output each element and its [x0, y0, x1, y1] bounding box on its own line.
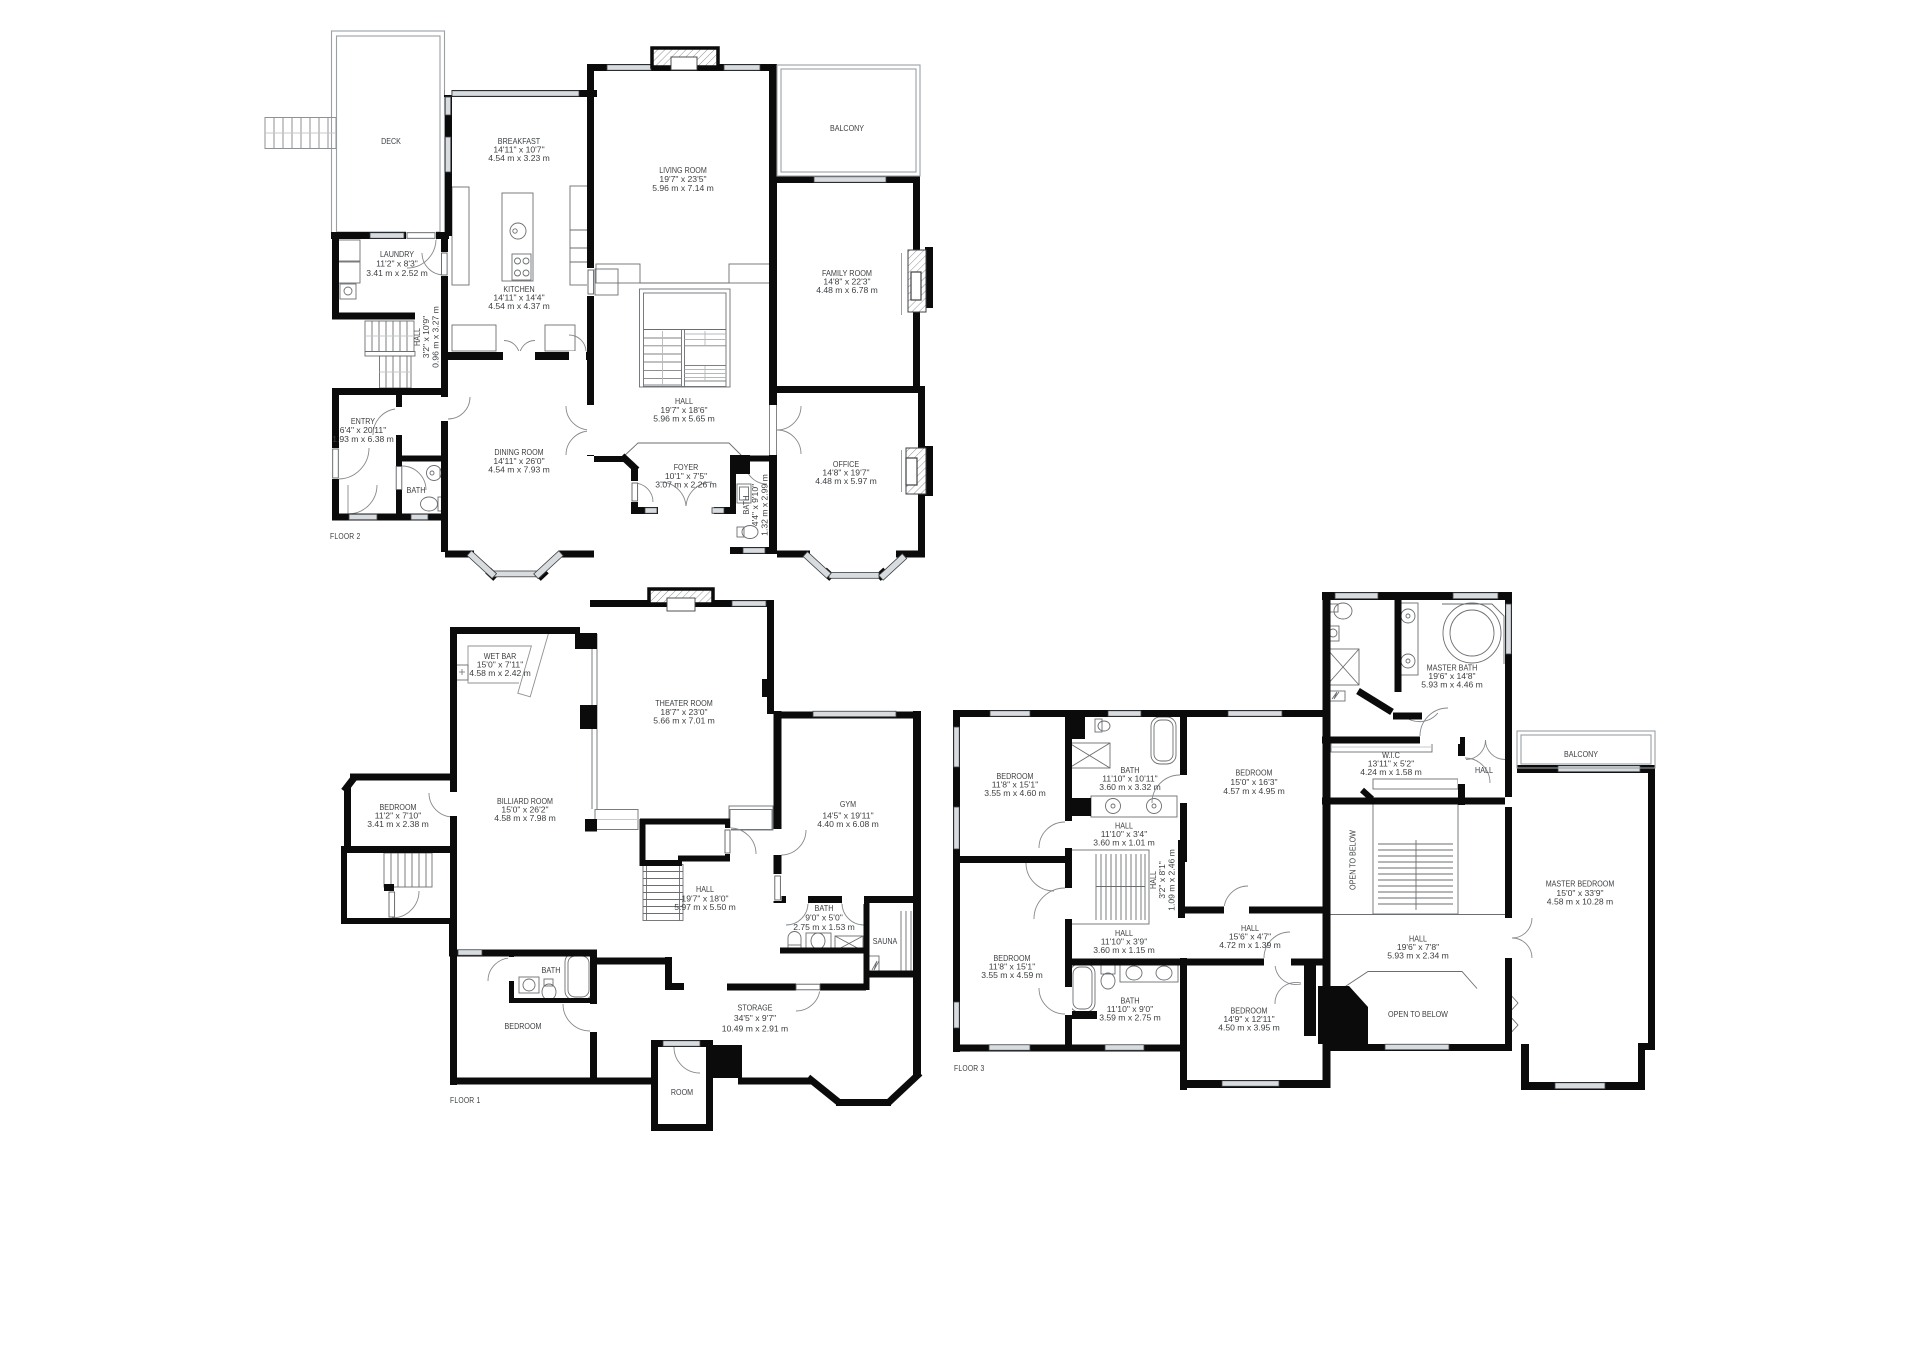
svg-text:3.41 m x 2.38 m: 3.41 m x 2.38 m [367, 819, 429, 829]
svg-text:3.59 m x 2.75 m: 3.59 m x 2.75 m [1099, 1013, 1161, 1023]
svg-text:3.55 m x 4.60 m: 3.55 m x 4.60 m [984, 788, 1046, 798]
svg-text:FLOOR 2: FLOOR 2 [330, 532, 361, 541]
svg-text:BATH: BATH [542, 965, 561, 975]
svg-text:1.09 m x 2.46 m: 1.09 m x 2.46 m [1167, 849, 1177, 911]
svg-text:3'2" x 10'9": 3'2" x 10'9" [421, 316, 431, 358]
svg-text:4.48 m x 5.97 m: 4.48 m x 5.97 m [815, 476, 877, 486]
svg-text:BALCONY: BALCONY [1564, 749, 1598, 759]
svg-text:5.93 m x 2.34 m: 5.93 m x 2.34 m [1387, 951, 1449, 961]
svg-text:10.49 m x 2.91 m: 10.49 m x 2.91 m [722, 1024, 788, 1034]
svg-text:3.07 m x 2.26 m: 3.07 m x 2.26 m [655, 480, 717, 490]
svg-text:3.41 m x 2.52 m: 3.41 m x 2.52 m [366, 268, 428, 278]
svg-text:4.54 m x 3.23 m: 4.54 m x 3.23 m [488, 153, 550, 163]
svg-text:3.60 m x 3.32 m: 3.60 m x 3.32 m [1099, 782, 1161, 792]
svg-text:HALL: HALL [1475, 765, 1493, 775]
svg-text:SAUNA: SAUNA [873, 936, 898, 946]
svg-text:BATH: BATH [407, 485, 426, 495]
svg-text:5.97 m x 5.50 m: 5.97 m x 5.50 m [674, 902, 736, 912]
svg-text:11'2" x 8'3": 11'2" x 8'3" [376, 259, 418, 269]
svg-text:4.72 m x 1.39 m: 4.72 m x 1.39 m [1219, 940, 1281, 950]
svg-text:5.96 m x 7.14 m: 5.96 m x 7.14 m [652, 183, 714, 193]
svg-text:DECK: DECK [381, 136, 401, 146]
svg-text:3.60 m x 1.15 m: 3.60 m x 1.15 m [1093, 945, 1155, 955]
svg-text:4.54 m x 4.37 m: 4.54 m x 4.37 m [488, 301, 550, 311]
svg-text:4'4" x 9'10": 4'4" x 9'10" [750, 484, 760, 526]
svg-text:1.93 m x 6.38 m: 1.93 m x 6.38 m [332, 434, 394, 444]
svg-text:4.58 m x 7.98 m: 4.58 m x 7.98 m [494, 813, 556, 823]
svg-text:4.40 m x 6.08 m: 4.40 m x 6.08 m [817, 819, 879, 829]
svg-text:OPEN TO BELOW: OPEN TO BELOW [1388, 1009, 1449, 1019]
svg-text:0.96 m x 3.27 m: 0.96 m x 3.27 m [431, 306, 441, 368]
svg-text:BALCONY: BALCONY [830, 123, 864, 133]
svg-text:GYM: GYM [840, 799, 856, 809]
svg-text:FLOOR 3: FLOOR 3 [954, 1064, 985, 1073]
svg-text:STORAGE: STORAGE [738, 1003, 773, 1013]
svg-text:5.96 m x 5.65 m: 5.96 m x 5.65 m [653, 414, 715, 424]
svg-text:BEDROOM: BEDROOM [505, 1021, 542, 1031]
svg-text:1.32 m x 2.99 m: 1.32 m x 2.99 m [760, 474, 770, 536]
svg-text:FLOOR 1: FLOOR 1 [450, 1096, 481, 1105]
svg-text:3'2" x 8'1": 3'2" x 8'1" [1157, 861, 1167, 899]
svg-text:34'5" x 9'7": 34'5" x 9'7" [734, 1013, 776, 1023]
svg-text:3.60 m x 1.01 m: 3.60 m x 1.01 m [1093, 838, 1155, 848]
svg-text:4.24 m x 1.58 m: 4.24 m x 1.58 m [1360, 767, 1422, 777]
svg-text:4.48 m x 6.78 m: 4.48 m x 6.78 m [816, 285, 878, 295]
svg-text:ROOM: ROOM [671, 1087, 693, 1097]
svg-text:OPEN TO BELOW: OPEN TO BELOW [1348, 829, 1358, 890]
svg-text:9'0" x 5'0": 9'0" x 5'0" [805, 913, 843, 923]
svg-text:4.50 m x 3.95 m: 4.50 m x 3.95 m [1218, 1023, 1280, 1033]
svg-text:4.58 m x 10.28 m: 4.58 m x 10.28 m [1547, 897, 1613, 907]
svg-text:HALL: HALL [696, 884, 714, 894]
svg-text:LAUNDRY: LAUNDRY [380, 249, 414, 259]
svg-text:2.75 m x 1.53 m: 2.75 m x 1.53 m [793, 922, 855, 932]
svg-text:5.93 m x 4.46 m: 5.93 m x 4.46 m [1421, 680, 1483, 690]
svg-text:5.66 m x 7.01 m: 5.66 m x 7.01 m [653, 716, 715, 726]
svg-text:4.57 m x 4.95 m: 4.57 m x 4.95 m [1223, 786, 1285, 796]
svg-text:3.55 m x 4.59 m: 3.55 m x 4.59 m [981, 970, 1043, 980]
svg-text:4.58 m x 2.42 m: 4.58 m x 2.42 m [469, 668, 531, 678]
svg-text:BEDROOM: BEDROOM [1236, 768, 1273, 778]
svg-text:MASTER BEDROOM: MASTER BEDROOM [1546, 879, 1615, 889]
svg-text:BATH: BATH [815, 903, 834, 913]
svg-text:4.54 m x 7.93 m: 4.54 m x 7.93 m [488, 465, 550, 475]
